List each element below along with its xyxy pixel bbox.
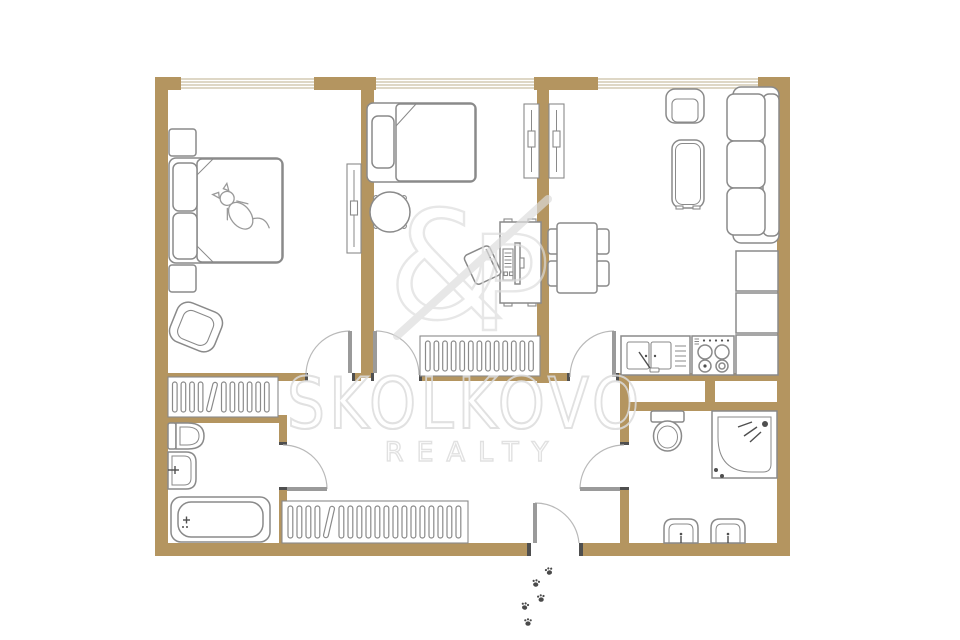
wardrobe-with-hangers <box>168 377 278 417</box>
paw-print-icon <box>520 601 529 610</box>
nightstand <box>169 265 196 292</box>
windows <box>181 77 758 90</box>
bathroom-left <box>168 423 270 542</box>
paw-print-icon <box>544 566 553 575</box>
toilet <box>651 411 684 451</box>
watermark-brand: SKOLKOVO <box>287 363 643 445</box>
slim-wardrobe <box>347 164 361 253</box>
bathtub <box>171 497 270 542</box>
slim-wardrobe <box>549 104 564 178</box>
double-bed <box>169 158 283 263</box>
kitchen-counter <box>736 335 778 375</box>
window-2 <box>376 77 534 90</box>
sofa <box>727 87 779 243</box>
paw-prints <box>520 566 553 625</box>
window-1 <box>181 77 314 90</box>
kitchen-cabinet <box>736 251 778 291</box>
slim-wardrobe <box>524 104 539 178</box>
dining-chair <box>596 261 609 286</box>
dining-table <box>557 223 597 293</box>
single-bed <box>367 103 476 182</box>
armchair <box>166 299 226 356</box>
watermark-division: REALTY <box>385 437 562 468</box>
living-room-kitchen <box>548 87 779 375</box>
floor-plan-screenshot: & P SKOLKOVO REALTY <box>0 0 960 640</box>
dining-chair <box>596 229 609 254</box>
washbasin <box>664 519 698 543</box>
bedroom-left <box>166 129 361 355</box>
paw-print-icon <box>532 579 541 588</box>
floor-plan-drawing: & P SKOLKOVO REALTY <box>0 0 960 640</box>
watermark-logo: & P <box>388 180 550 362</box>
kitchen-cabinet <box>736 293 778 333</box>
long-wardrobe-with-hangers <box>282 501 468 543</box>
armchair <box>666 89 704 123</box>
dining-set <box>548 223 609 293</box>
paw-print-icon <box>537 594 545 602</box>
nightstand <box>169 129 196 156</box>
coffee-table <box>672 140 704 209</box>
entrance-door <box>527 503 583 556</box>
washbasin <box>168 452 196 489</box>
toilet <box>168 423 204 449</box>
washbasin <box>711 519 745 543</box>
shower-head-icon <box>762 421 768 427</box>
door-bathroom-left <box>279 442 327 491</box>
corner-shower <box>712 411 777 478</box>
door-shower-room <box>580 442 629 491</box>
window-3 <box>598 77 758 90</box>
stove <box>692 336 734 375</box>
paw-print-icon <box>524 618 532 626</box>
shower-room <box>651 411 777 543</box>
